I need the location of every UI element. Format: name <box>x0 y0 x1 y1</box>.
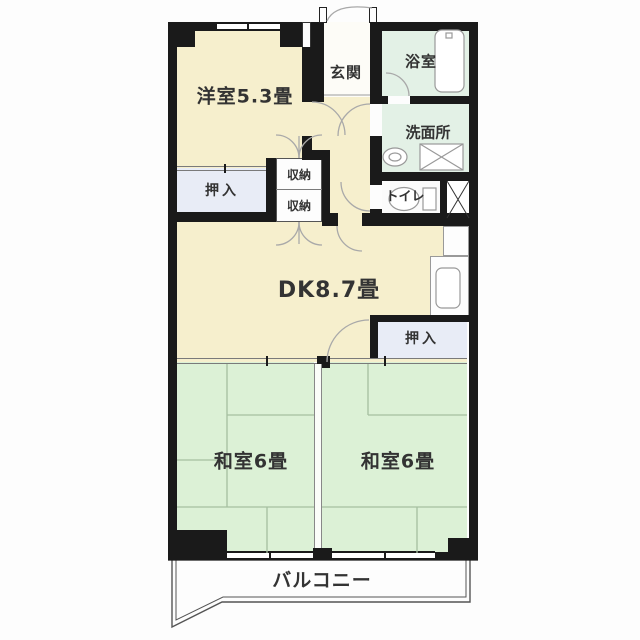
fusuma-dk-east-tick <box>384 356 386 366</box>
label-washroom: 洗面所 <box>405 126 450 141</box>
label-entrance: 玄関 <box>330 66 362 81</box>
wall-bath-left-lower <box>370 136 382 172</box>
wall-closet-right-left <box>370 322 378 358</box>
label-closet-left: 押入 <box>205 184 239 198</box>
wall-western-right-a <box>302 47 312 102</box>
label-storage-bottom: 収納 <box>287 200 311 212</box>
divider-japanese-rooms <box>314 364 322 553</box>
wall-bath-washroom-a <box>382 96 388 104</box>
wall-entrance-left <box>311 22 324 102</box>
window-bottom-right-tick <box>384 551 386 560</box>
wall-closet-bottom <box>168 212 266 222</box>
label-japanese-right: 和室6畳 <box>361 453 435 472</box>
wall-top-mid-block <box>280 22 302 47</box>
room-entrance <box>324 22 370 97</box>
label-balcony: バルコニー <box>272 572 372 591</box>
wall-washroom-toilet <box>370 172 469 181</box>
window-top-tick <box>247 22 249 31</box>
label-japanese-left: 和室6畳 <box>214 453 288 472</box>
fusuma-dk-west-tick <box>266 356 268 366</box>
fusuma-closet-left <box>177 166 266 171</box>
wall-left-outer <box>168 22 177 560</box>
storage-divider-line <box>276 189 322 191</box>
wall-storage-left <box>266 158 276 222</box>
wall-bath-left-upper <box>370 22 382 104</box>
wall-top-left <box>168 22 217 31</box>
wall-top-right <box>377 22 469 31</box>
entrance-door-post-right <box>369 7 377 23</box>
label-western-room: 洋室5.3畳 <box>197 88 294 107</box>
wall-storage-right <box>322 150 330 222</box>
floor-plan: 洋室5.3畳 玄関 浴室 洗面所 トイレ 押入 収納 収納 DK8.7畳 押入 … <box>0 0 640 640</box>
wall-bottom-left-block <box>168 530 227 560</box>
wall-bottom-right-block <box>448 538 478 560</box>
kitchen-counter-upper <box>443 226 469 256</box>
wall-dk-top-right <box>362 213 469 226</box>
label-bathroom: 浴室 <box>405 55 437 70</box>
wall-nw-notch <box>177 31 195 47</box>
wall-right-outer <box>469 22 478 560</box>
label-storage-top: 収納 <box>287 169 311 181</box>
window-bottom-left-tick <box>269 551 271 560</box>
entrance-door-post-left <box>319 7 327 23</box>
fusuma-dk-east <box>329 358 467 364</box>
label-closet-right: 押入 <box>405 332 439 346</box>
fusuma-dk-west <box>177 358 317 364</box>
label-dk: DK8.7畳 <box>278 280 380 302</box>
label-toilet: トイレ <box>385 191 424 204</box>
wall-toilet-left-a <box>370 181 382 185</box>
shoe-cabinet <box>302 22 311 48</box>
kitchen-counter-lower <box>430 256 469 316</box>
entrance-door-arc <box>327 7 372 21</box>
wall-bottom-center-block <box>313 548 332 560</box>
fusuma-closet-tick <box>224 164 226 173</box>
wall-closet-right-top <box>370 315 469 322</box>
wall-storage-joint <box>302 150 330 160</box>
wall-bath-washroom-b <box>410 96 469 104</box>
